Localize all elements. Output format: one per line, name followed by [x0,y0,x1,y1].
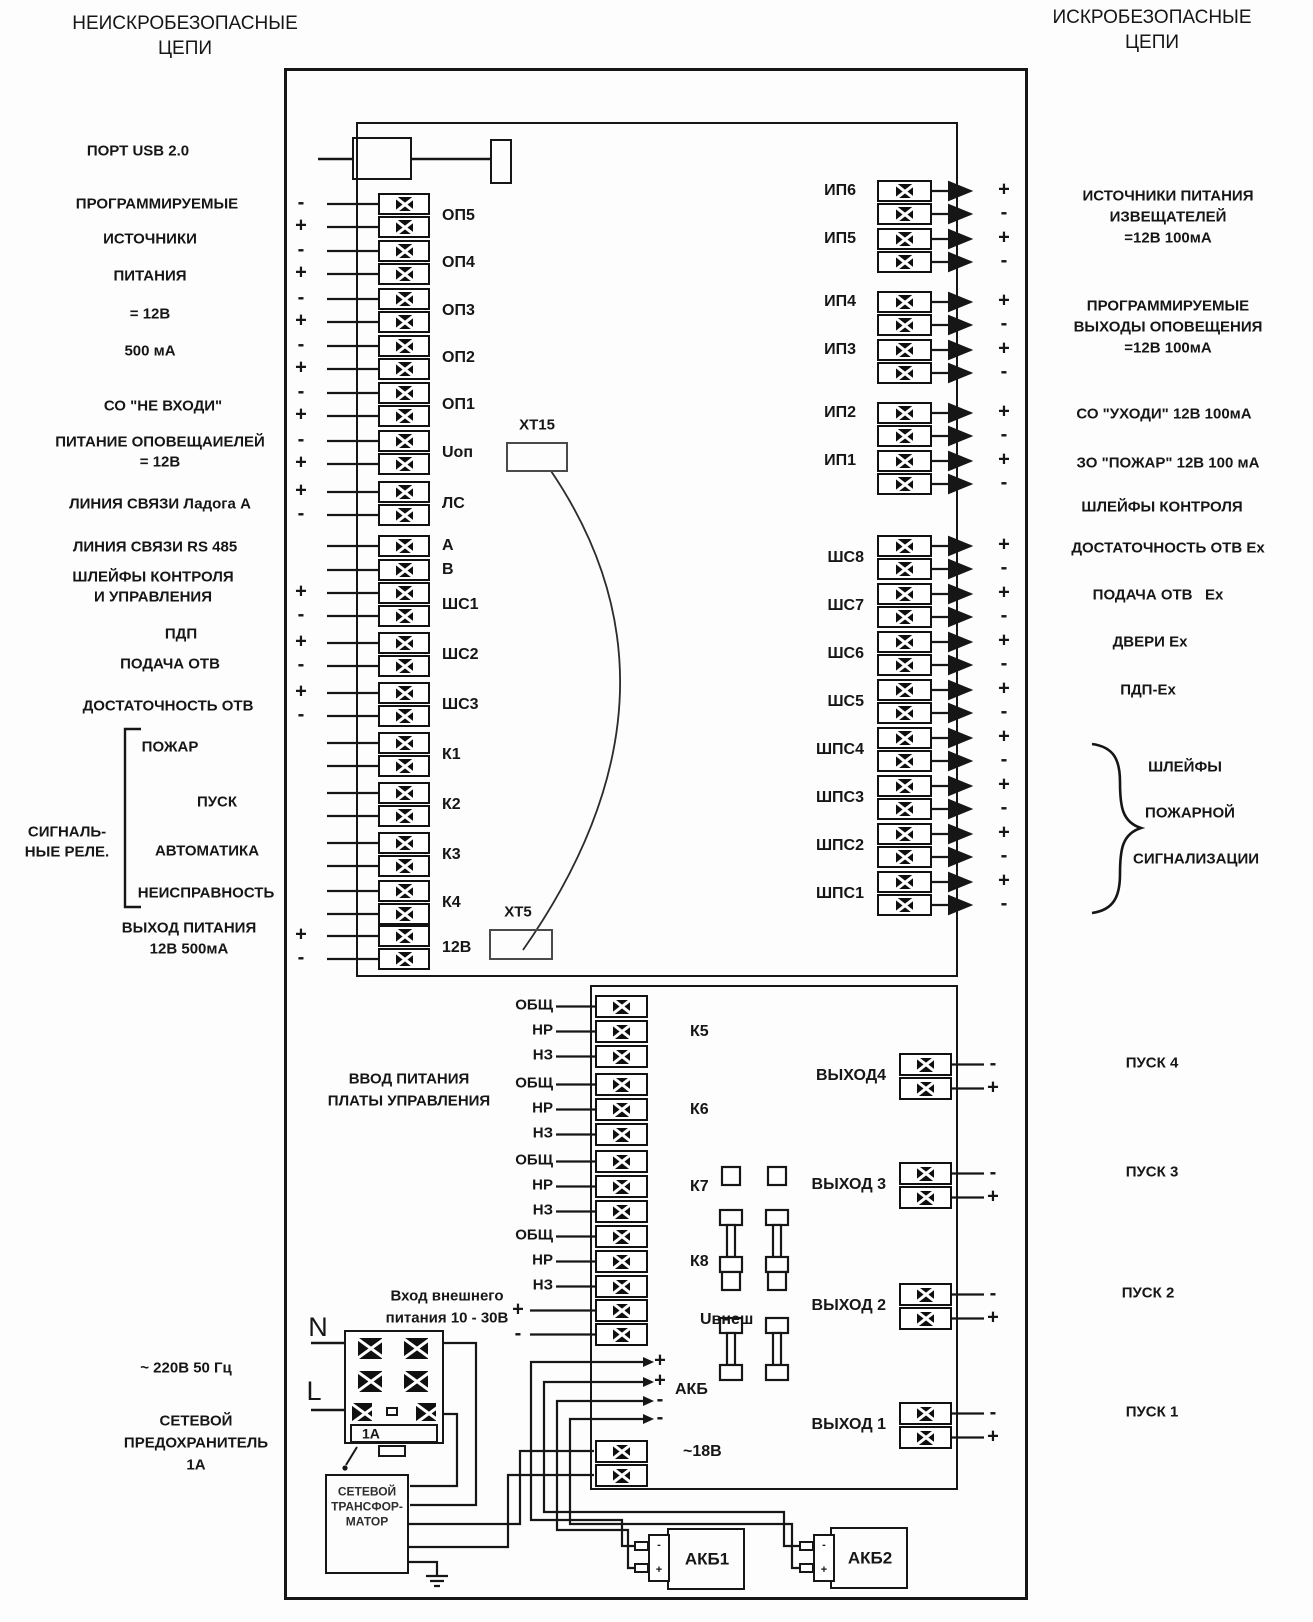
terminal-out3-1 [899,1162,952,1185]
terminal-shs2-1 [378,632,430,654]
terminal-group-label-shs3: ШС3 [442,696,479,714]
polarity-sign: + [295,262,307,285]
terminal-group-label-ip1: ИП1 [824,452,856,470]
polarity-sign: + [998,582,1010,605]
title-left-line2: ЦЕПИ [158,37,212,61]
polarity-sign: + [295,631,307,654]
mains-screw-icon [358,1338,382,1359]
terminal-screw-icon [896,539,913,553]
terminal-group-label-shs7: ШС7 [827,597,864,615]
terminal-group-label-shs8: ШС8 [827,549,864,567]
terminal-shs5-2 [877,702,932,724]
right-annotation-6: СО "УХОДИ" 12В 100мА [1076,406,1251,425]
polarity-sign: + [998,338,1010,361]
polarity-sign: + [998,822,1010,845]
terminal-shps4-2 [877,750,932,772]
right-annotation-1: ИЗВЕЩАТЕЛЕЙ [1110,209,1227,228]
terminal-screw-icon [896,184,913,198]
polarity-sign: - [298,381,305,404]
terminal-uop-2 [378,453,430,475]
polarity-sign: + [998,630,1010,653]
title-right-line2: ЦЕПИ [1125,31,1179,55]
terminal-screw-icon [613,1205,630,1219]
polarity-sign: + [295,581,307,604]
polarity-sign: - [1001,202,1008,225]
left-annotation-3: ПИТАНИЯ [113,268,186,287]
terminal-k6-2 [595,1098,648,1121]
left-annotation-22: ВЫХОД ПИТАНИЯ [122,920,256,939]
terminal-screw-icon [396,809,413,823]
terminal-uvnesh-1 [595,1299,648,1322]
relay-label-k5: К5 [690,1023,709,1041]
relay-label-k7: К7 [690,1178,709,1196]
right-annotation-2: =12В 100мА [1124,230,1211,249]
terminal-screw-icon [896,429,913,443]
right-annotation-3: ПРОГРАММИРУЕМЫЕ [1087,298,1249,317]
terminal-screw-icon [896,454,913,468]
right-annotation-13: ШЛЕЙФЫ [1148,759,1222,778]
terminal-group-label-shps2: ШПС2 [816,837,864,855]
right-annotation-9: ДОСТАТОЧНОСТЬ ОТВ Ex [1071,540,1264,559]
terminal-shs7-2 [877,606,932,628]
polarity-sign: - [298,287,305,310]
left-annotation-24: ~ 220В 50 Гц [140,1360,232,1379]
terminal-screw-icon [613,1230,630,1244]
terminal-screw-icon [896,477,913,491]
relay-bracket [125,729,141,907]
terminal-group-label-shps1: ШПС1 [816,885,864,903]
terminal-18v-1 [595,1440,648,1463]
terminal-ip6-1 [877,180,932,202]
terminal-screw-icon [396,636,413,650]
terminal-op2-2 [378,358,430,380]
terminal-out3-2 [899,1186,952,1209]
terminal-shps2-2 [877,846,932,868]
terminal-k7-2 [595,1175,648,1198]
polarity-sign: + [998,678,1010,701]
battery-2-plug-plus: + [821,1564,827,1578]
polarity-sign: - [1001,605,1008,628]
terminal-screw-icon [613,1050,630,1064]
terminal-op3-1 [378,288,430,310]
right-annotation-15: СИГНАЛИЗАЦИИ [1133,851,1259,870]
ext-power-line1: Вход внешнего [391,1288,504,1307]
right-annotation-17: ПУСК 3 [1126,1164,1179,1183]
left-annotation-2: ИСТОЧНИКИ [103,231,197,250]
polarity-sign: - [1001,797,1008,820]
terminal-out2-2 [899,1307,952,1330]
terminal-screw-icon [396,362,413,376]
terminal-screw-icon [917,1191,934,1205]
terminal-op4-2 [378,263,430,285]
mains-screw-icon [358,1371,382,1392]
battery-2-plug-pin [799,1563,814,1573]
battery-1-plug-pin [634,1563,649,1573]
polarity-sign: - [298,704,305,727]
terminal-screw-icon [896,875,913,889]
output-label-out3: ВЫХОД 3 [812,1176,886,1194]
polarity-sign: - [298,239,305,262]
left-annotation-19: НЕИСПРАВНОСТЬ [138,885,275,904]
polarity-sign: - [1001,749,1008,772]
terminal-ls-1 [378,481,430,503]
polarity-sign: + [295,310,307,333]
output-label-out4: ВЫХОД4 [816,1067,886,1085]
right-annotation-16: ПУСК 4 [1126,1055,1179,1074]
right-annotation-10: ПОДАЧА ОТВ Ex [1093,587,1224,606]
terminal-group-label-a: А [442,537,454,555]
terminal-screw-icon [896,587,913,601]
terminal-group-label-ip5: ИП5 [824,230,856,248]
polarity-sign: + [295,215,307,238]
terminal-group-label-op5: ОП5 [442,207,475,225]
polarity-sign: - [515,1322,522,1345]
terminal-12v-1 [378,925,430,947]
terminal-screw-icon [396,952,413,966]
terminal-18v-2 [595,1464,648,1487]
left-annotation-27: 1А [186,1457,205,1476]
polarity-sign: + [987,1425,999,1448]
right-annotation-0: ИСТОЧНИКИ ПИТАНИЯ [1083,188,1254,207]
polarity-sign: - [990,1282,997,1305]
terminal-screw-icon [396,859,413,873]
battery-1-label: АКБ1 [685,1548,729,1569]
terminal-screw-icon [396,315,413,329]
terminal-a-1 [378,535,430,557]
terminal-screw-icon [917,1288,934,1302]
terminal-screw-icon [896,406,913,420]
relay-pin-label-k6-ОБЩ: ОБЩ [515,1074,553,1091]
terminal-screw-icon [396,197,413,211]
right-annotation-11: ДВЕРИ Ex [1113,634,1188,653]
polarity-sign: + [512,1298,524,1321]
terminal-k8-3 [595,1275,648,1298]
terminal-shps3-1 [877,775,932,797]
left-annotation-15: ДОСТАТОЧНОСТЬ ОТВ [83,698,254,717]
battery-1-plug-plus: + [656,1564,662,1578]
terminal-screw-icon [917,1431,934,1445]
terminal-out4-2 [899,1077,952,1100]
terminal-screw-icon [917,1082,934,1096]
left-annotation-16: ПОЖАР [142,739,199,758]
terminal-group-label-shs5: ШС5 [827,693,864,711]
battery-2-plug-minus: - [822,1539,826,1553]
relay-pin-label-k8-ОБЩ: ОБЩ [515,1226,553,1243]
terminal-screw-icon [396,339,413,353]
battery-1-plug-minus: - [657,1539,661,1553]
terminal-ip5-1 [877,228,932,250]
terminal-screw-icon [917,1167,934,1181]
terminal-shs6-1 [877,631,932,653]
left-annotation-5: 500 мА [124,343,175,362]
mains-jumper [386,1407,398,1416]
polarity-sign: + [998,290,1010,313]
left-annotation-10: ЛИНИЯ СВЯЗИ RS 485 [73,539,237,558]
terminal-shps3-2 [877,798,932,820]
terminal-group-label-shs6: ШС6 [827,645,864,663]
terminal-ip1-1 [877,450,932,472]
terminal-screw-icon [613,1155,630,1169]
right-annotation-5: =12В 100мА [1124,340,1211,359]
right-annotation-8: ШЛЕЙФЫ КОНТРОЛЯ [1081,499,1242,518]
terminal-screw-icon [396,609,413,623]
left-annotation-13: ПДП [165,626,197,645]
polarity-sign: - [1001,557,1008,580]
battery-2-label: АКБ2 [848,1547,892,1568]
terminal-op1-2 [378,405,430,427]
terminal-out4-1 [899,1053,952,1076]
polarity-sign: - [1001,653,1008,676]
left-annotation-12: И УПРАВЛЕНИЯ [94,589,212,608]
terminal-screw-icon [917,1407,934,1421]
polarity-sign: - [657,1407,664,1430]
right-annotation-4: ВЫХОДЫ ОПОВЕЩЕНИЯ [1074,319,1263,338]
mains-fuse-value: 1А [362,1425,380,1443]
terminal-k5-1 [595,995,648,1018]
terminal-screw-icon [396,686,413,700]
terminal-shps1-1 [877,871,932,893]
terminal-screw-icon [896,827,913,841]
terminal-screw-icon [613,1180,630,1194]
terminal-screw-icon [896,562,913,576]
terminal-shs3-2 [378,705,430,727]
terminal-screw-icon [613,1445,630,1459]
polarity-sign: - [1001,893,1008,916]
left-annotation-9: ЛИНИЯ СВЯЗИ Ладога А [69,496,251,515]
terminal-screw-icon [613,1280,630,1294]
terminal-screw-icon [896,731,913,745]
terminal-shs6-2 [877,654,932,676]
terminal-screw-icon [896,255,913,269]
usb-slot-box [490,139,512,184]
terminal-ip6-2 [877,203,932,225]
polarity-sign: - [1001,472,1008,495]
relay-pin-label-k5-НР: НР [532,1021,553,1038]
polarity-sign: - [1001,361,1008,384]
relay-pin-label-k8-НР: НР [532,1251,553,1268]
polarity-sign: + [998,726,1010,749]
terminal-screw-icon [396,736,413,750]
terminal-group-label-ip2: ИП2 [824,404,856,422]
battery-1-plug-pin [634,1541,649,1551]
polarity-sign: - [298,654,305,677]
terminal-k3-1 [378,832,430,854]
terminal-ip3-2 [877,362,932,384]
terminal-screw-icon [396,907,413,921]
terminal-ip4-2 [877,314,932,336]
left-annotation-11: ШЛЕЙФЫ КОНТРОЛЯ [72,569,233,588]
mains-screw-icon [416,1403,436,1421]
battery-2-plug-pin [799,1541,814,1551]
terminal-screw-icon [396,786,413,800]
right-annotation-18: ПУСК 2 [1122,1285,1175,1304]
left-annotation-14: ПОДАЧА ОТВ [120,656,220,675]
terminal-ip1-2 [877,473,932,495]
terminal-screw-icon [896,610,913,624]
polarity-sign: - [1001,313,1008,336]
terminal-screw-icon [896,779,913,793]
relay-pin-label-k8-НЗ: НЗ [533,1276,553,1293]
vvod-pitaniya-line1: ВВОД ПИТАНИЯ [349,1071,470,1090]
relay-pin-label-k6-НЗ: НЗ [533,1124,553,1141]
terminal-screw-icon [896,802,913,816]
terminal-shs5-1 [877,679,932,701]
terminal-group-label-uop: Uоп [442,444,473,462]
terminal-ip2-2 [877,425,932,447]
terminal-screw-icon [396,267,413,281]
terminal-b-1 [378,559,430,581]
terminal-ls-2 [378,504,430,526]
terminal-screw-icon [613,1128,630,1142]
terminal-screw-icon [917,1312,934,1326]
terminal-screw-icon [896,295,913,309]
terminal-op1-1 [378,382,430,404]
terminal-shs1-2 [378,605,430,627]
terminal-shs8-2 [877,558,932,580]
terminal-ip3-1 [877,339,932,361]
terminal-screw-icon [896,754,913,768]
left-annotation-0: ПОРТ USB 2.0 [87,143,189,162]
terminal-screw-icon [396,386,413,400]
transformer-label-1: СЕТЕВОЙ [338,1485,396,1500]
polarity-sign: + [987,1306,999,1329]
terminal-group-label-op1: ОП1 [442,396,475,414]
terminal-group-label-shs1: ШС1 [442,596,479,614]
mains-block-tab [378,1445,406,1457]
polarity-sign: - [298,947,305,970]
relay-label-k6: К6 [690,1101,709,1119]
polarity-sign: + [295,480,307,503]
terminal-shs1-1 [378,582,430,604]
polarity-sign: - [298,192,305,215]
terminal-group-label-ip6: ИП6 [824,182,856,200]
terminal-ip4-1 [877,291,932,313]
polarity-sign: + [998,449,1010,472]
terminal-screw-icon [896,635,913,649]
terminal-screw-icon [396,457,413,471]
terminal-k2-2 [378,805,430,827]
terminal-screw-icon [613,1255,630,1269]
relay-pin-label-k6-НР: НР [532,1099,553,1116]
terminal-group-label-op2: ОП2 [442,349,475,367]
vvod-pitaniya-line2: ПЛАТЫ УПРАВЛЕНИЯ [328,1093,490,1112]
terminal-group-label-k4: К4 [442,894,461,912]
polarity-sign: + [295,681,307,704]
ext-power-line2: питания 10 - 30В [386,1310,509,1329]
polarity-sign: - [298,604,305,627]
left-annotation-7: ПИТАНИЕ ОПОВЕЩАИЕЛЕЙ [55,434,265,453]
xt15-label: ХТ15 [519,417,555,436]
terminal-screw-icon [613,1103,630,1117]
terminal-screw-icon [896,318,913,332]
polarity-sign: + [295,404,307,427]
right-annotation-14: ПОЖАРНОЙ [1145,805,1235,824]
terminal-op5-1 [378,193,430,215]
polarity-sign: + [998,401,1010,424]
terminal-shs8-1 [877,535,932,557]
terminal-screw-icon [613,1025,630,1039]
polarity-sign: + [998,534,1010,557]
polarity-sign: - [1001,701,1008,724]
terminal-screw-icon [396,485,413,499]
terminal-uvnesh-2 [595,1323,648,1346]
polarity-sign: + [295,452,307,475]
relay-pin-label-k5-ОБЩ: ОБЩ [515,996,553,1013]
terminal-shs2-2 [378,655,430,677]
polarity-sign: + [987,1185,999,1208]
polarity-sign: + [998,227,1010,250]
terminal-screw-icon [896,207,913,221]
terminal-screw-icon [613,1469,630,1483]
terminal-screw-icon [396,220,413,234]
relay-pin-label-k7-ОБЩ: ОБЩ [515,1151,553,1168]
terminal-screw-icon [896,898,913,912]
terminal-k2-1 [378,782,430,804]
akb-label: АКБ [675,1381,708,1399]
title-left-line1: НЕИСКРОБЕЗОПАСНЫЕ [72,12,298,36]
terminal-screw-icon [896,850,913,864]
wiring-diagram-canvas: 1А СЕТЕВОЙ ТРАНСФОР- МАТОР - + - + АКБ1 … [0,0,1313,1622]
polarity-sign: - [1001,845,1008,868]
polarity-sign: + [295,924,307,947]
xt15-connector-box [506,442,568,472]
terminal-screw-icon [396,539,413,553]
output-label-out1: ВЫХОД 1 [812,1416,886,1434]
polarity-sign: - [990,1401,997,1424]
polarity-sign: + [998,774,1010,797]
terminal-shps1-2 [877,894,932,916]
left-annotation-6: СО "НЕ ВХОДИ" [104,398,222,417]
terminal-k8-1 [595,1225,648,1248]
terminal-k1-1 [378,732,430,754]
terminal-group-label-b: В [442,561,454,579]
terminal-group-label-op4: ОП4 [442,254,475,272]
terminal-op2-1 [378,335,430,357]
terminal-screw-icon [396,659,413,673]
terminal-group-label-12v: 12В [442,939,471,957]
left-annotation-4: = 12В [130,306,170,325]
uvnesh-label: Uвнеш [700,1311,753,1329]
mains-screw-icon [404,1338,428,1359]
usb-port-box [352,137,412,180]
terminal-screw-icon [917,1058,934,1072]
terminal-screw-icon [613,1000,630,1014]
terminal-k8-2 [595,1250,648,1273]
terminal-k7-1 [595,1150,648,1173]
fire-loops-brace [1092,744,1141,913]
terminal-screw-icon [396,244,413,258]
terminal-group-label-op3: ОП3 [442,302,475,320]
terminal-out1-2 [899,1426,952,1449]
polarity-sign: + [998,870,1010,893]
terminal-screw-icon [896,658,913,672]
right-annotation-19: ПУСК 1 [1126,1404,1179,1423]
v18-label: ~18В [683,1443,722,1461]
terminal-screw-icon [896,706,913,720]
terminal-k5-2 [595,1020,648,1043]
relay-pin-label-k7-НЗ: НЗ [533,1201,553,1218]
terminal-screw-icon [396,434,413,448]
mains-l-label: L [306,1375,321,1409]
terminal-k1-2 [378,755,430,777]
terminal-screw-icon [396,586,413,600]
polarity-sign: - [1001,424,1008,447]
output-label-out2: ВЫХОД 2 [812,1297,886,1315]
transformer-label-3: МАТОР [346,1515,388,1530]
terminal-group-label-shs2: ШС2 [442,646,479,664]
left-annotation-8: = 12В [140,454,180,473]
polarity-sign: + [987,1076,999,1099]
